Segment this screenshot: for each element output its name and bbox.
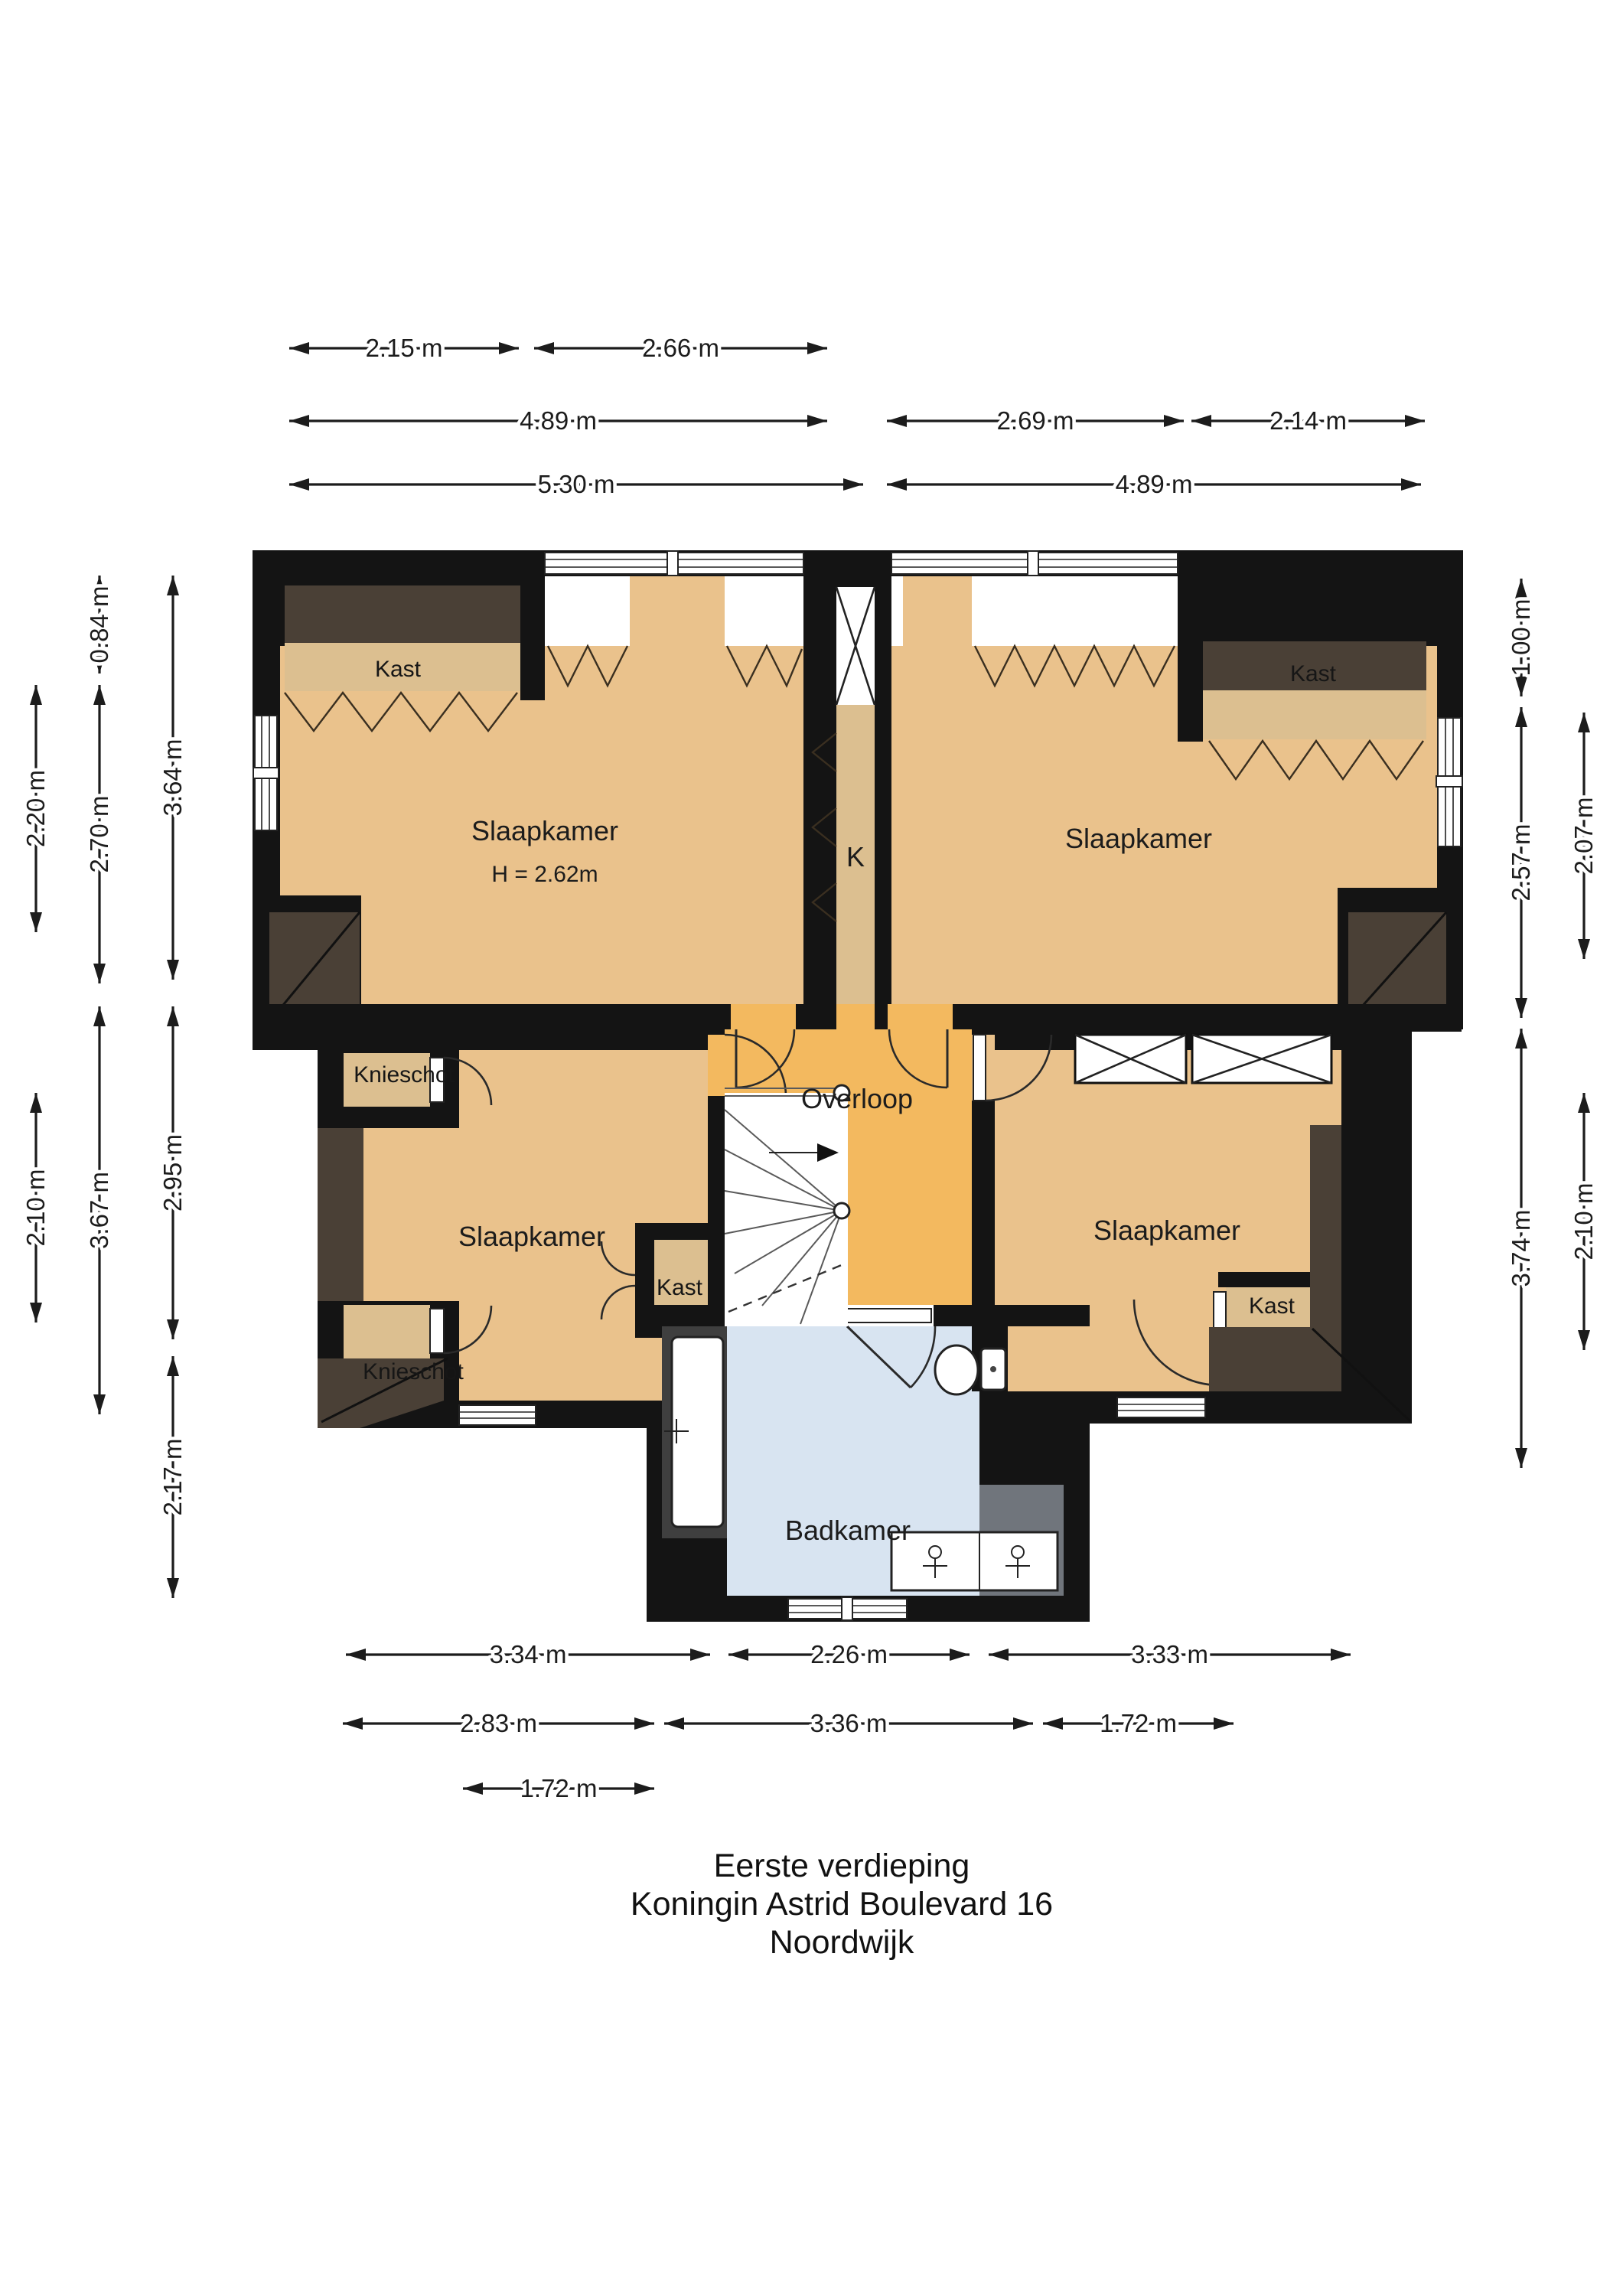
dimension-label: 3.33 m [1131, 1640, 1208, 1668]
chimney-crossbox-icon [836, 587, 875, 705]
room-label-knieschot-bottom: Knieschot [363, 1359, 464, 1384]
dimension-label: 1.72 m [1100, 1709, 1177, 1737]
dimension-label: 2.70 m [85, 796, 113, 873]
dimension-label: 2.66 m [642, 334, 719, 362]
dimension-label: 1.72 m [520, 1774, 598, 1802]
dimension-label: 3.34 m [490, 1640, 567, 1668]
window-right-wall [1436, 718, 1462, 846]
dimension-label: 2.95 m [158, 1134, 187, 1212]
title-floor: Eerste verdieping [714, 1848, 970, 1884]
dimension-label: 2.14 m [1269, 406, 1347, 435]
window-bottom-left-room [459, 1405, 536, 1425]
knieschot-bottom-box [344, 1305, 430, 1358]
room-label-overloop: Overloop [801, 1083, 913, 1114]
dimension-label: 2.26 m [810, 1640, 888, 1668]
dimension-label: 2.15 m [366, 334, 443, 362]
window-top-right [891, 551, 1178, 576]
dimension-label: 2.10 m [21, 1169, 50, 1247]
dimension-label: 2.07 m [1569, 797, 1598, 875]
window-bottom-right-room [1117, 1397, 1205, 1417]
window-badkamer [788, 1597, 907, 1620]
room-label-k-closet: K [846, 841, 865, 872]
room-label-kast-bottom-left: Kast [657, 1275, 703, 1300]
room-label-slaapkamer-top-right: Slaapkamer [1065, 823, 1212, 854]
dimension-label: 3.64 m [158, 739, 187, 817]
floorplan-page: SlaapkamerH = 2.62mSlaapkamerSlaapkamerS… [0, 0, 1623, 2296]
room-label-slaapkamer-bottom-right: Slaapkamer [1093, 1215, 1240, 1246]
dimension-label: 2.20 m [21, 770, 50, 847]
dimension-label: 2.69 m [997, 406, 1074, 435]
dimension-label: 4.89 m [1116, 470, 1193, 498]
low-space-crossbox [1075, 1035, 1331, 1083]
dimension-label: 2.17 m [158, 1439, 187, 1516]
shower-icon [662, 1326, 727, 1538]
window-left-wall [253, 716, 279, 830]
dimension-label: 1.00 m [1507, 599, 1535, 677]
toilet-icon [935, 1345, 1005, 1394]
dimension-label: 2.10 m [1569, 1183, 1598, 1261]
title-block: Eerste verdieping Koningin Astrid Boulev… [631, 1848, 1053, 1961]
roof-slope-above-kast-top-left [285, 585, 520, 643]
dimension-label: 5.30 m [538, 470, 615, 498]
dimension-label: 3.36 m [810, 1709, 888, 1737]
room-label-kast-top-right: Kast [1290, 661, 1337, 687]
shaft-layer [803, 550, 891, 1029]
room-label-slaapkamer-top-left-height: H = 2.62m [491, 862, 598, 887]
floorplan-svg: SlaapkamerH = 2.62mSlaapkamerSlaapkamerS… [0, 0, 1623, 2296]
dimension-label: 4.89 m [520, 406, 597, 435]
title-city: Noordwijk [770, 1924, 914, 1961]
room-label-slaapkamer-bottom-left: Slaapkamer [458, 1221, 605, 1252]
double-washbasin-icon [891, 1532, 1058, 1590]
room-label-kast-bottom-right: Kast [1249, 1293, 1295, 1319]
dimension-label: 3.74 m [1507, 1210, 1535, 1287]
room-label-kast-top-left: Kast [375, 657, 422, 682]
room-label-slaapkamer-top-left: Slaapkamer [471, 815, 618, 846]
door-leaf [430, 1309, 444, 1353]
dimension-label: 2.57 m [1507, 824, 1535, 902]
roof-slope-left-band [318, 1128, 363, 1301]
dimension-label: 3.67 m [85, 1172, 113, 1249]
window-top-left [545, 551, 803, 576]
dimension-label: 2.83 m [460, 1709, 537, 1737]
stairs [725, 1085, 849, 1326]
title-address: Koningin Astrid Boulevard 16 [631, 1886, 1053, 1923]
room-label-knieschot-top: Knieschot [354, 1062, 455, 1088]
kast-top-right-box [1203, 690, 1426, 739]
dimension-label: 0.84 m [85, 586, 113, 664]
room-label-badkamer: Badkamer [785, 1515, 911, 1546]
